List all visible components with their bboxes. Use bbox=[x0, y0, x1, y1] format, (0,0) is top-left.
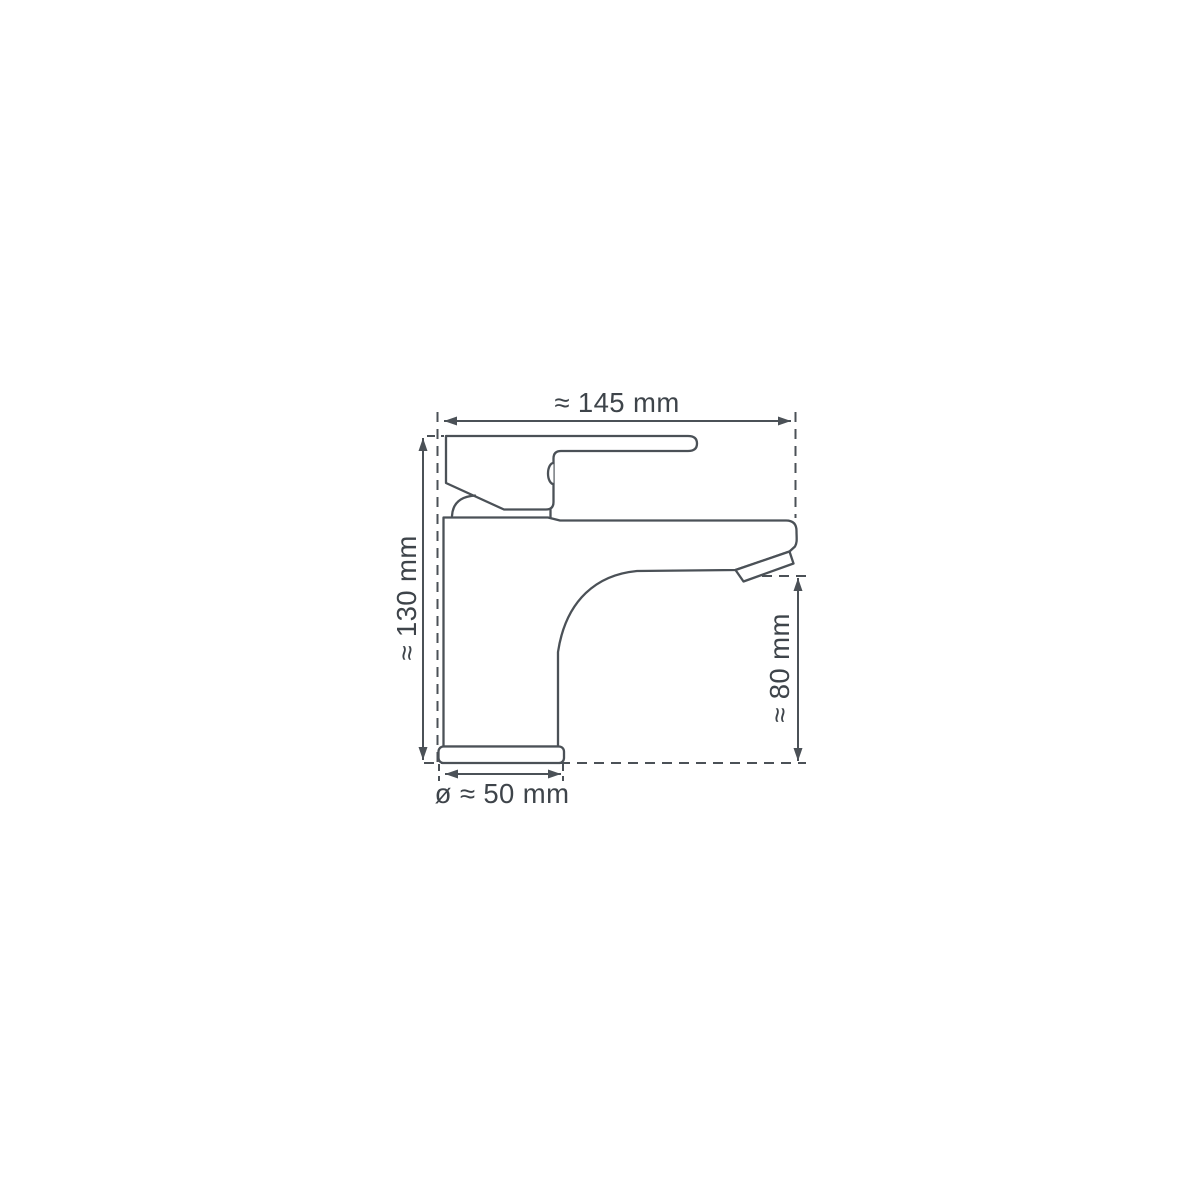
faucet-lever-handle bbox=[446, 436, 697, 510]
diameter-dimension-label: ø ≈ 50 mm bbox=[435, 778, 570, 809]
width-dimension-label: ≈ 145 mm bbox=[554, 387, 679, 418]
faucet-outline bbox=[439, 436, 797, 763]
cartridge-detail-bump bbox=[548, 463, 554, 484]
faucet-body bbox=[444, 518, 797, 747]
drawing-canvas: ≈ 145 mm ≈ 130 mm ≈ 80 mm ø ≈ 50 mm bbox=[0, 0, 1200, 1200]
faucet-dimension-drawing: ≈ 145 mm ≈ 130 mm ≈ 80 mm ø ≈ 50 mm bbox=[0, 0, 1200, 1200]
spout-height-dimension-label: ≈ 80 mm bbox=[764, 613, 795, 723]
base-plinth bbox=[439, 747, 565, 764]
height-dimension-label: ≈ 130 mm bbox=[391, 535, 422, 660]
cartridge-dome-line bbox=[452, 496, 475, 517]
